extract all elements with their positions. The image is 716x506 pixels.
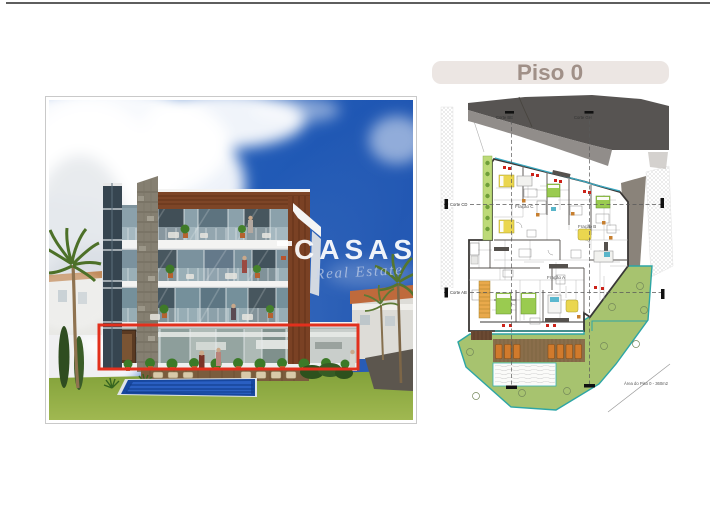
svg-text:Corte CD: Corte CD [450, 202, 467, 207]
svg-text:Corte AB: Corte AB [450, 290, 467, 295]
svg-text:Fração A: Fração A [547, 275, 565, 280]
svg-text:Área do Piso 0 - 360m2: Área do Piso 0 - 360m2 [624, 381, 669, 386]
svg-text:CASAS: CASAS [294, 234, 417, 265]
svg-text:Corte BE: Corte BE [496, 115, 513, 120]
svg-text:Fração B: Fração B [578, 224, 596, 229]
svg-text:Corte GH: Corte GH [574, 115, 592, 120]
svg-text:Piso 0: Piso 0 [517, 60, 583, 85]
